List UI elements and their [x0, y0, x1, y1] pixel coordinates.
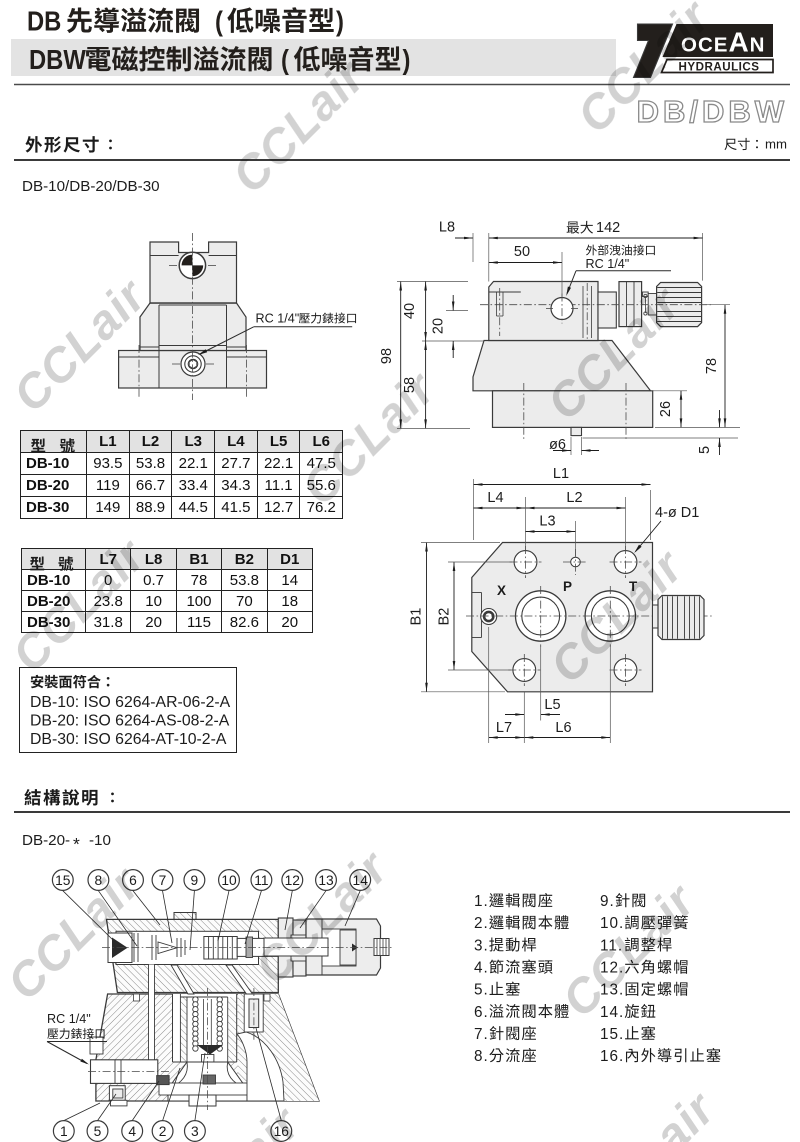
- svg-text:98: 98: [379, 348, 395, 364]
- svg-text:HYDRAULICS: HYDRAULICS: [678, 60, 759, 73]
- svg-text:4: 4: [128, 1124, 136, 1139]
- svg-text:mm: mm: [765, 137, 787, 152]
- svg-text:L3: L3: [539, 514, 555, 530]
- svg-text:*: *: [73, 834, 80, 854]
- svg-text:10: 10: [221, 873, 237, 888]
- svg-text:CCLair: CCLair: [158, 1097, 312, 1142]
- svg-text:3: 3: [191, 1124, 199, 1139]
- svg-text:L5: L5: [544, 697, 560, 713]
- svg-text:1: 1: [60, 1124, 68, 1139]
- svg-text:L1: L1: [553, 466, 569, 482]
- svg-text:2.: 2.: [474, 915, 489, 932]
- svg-text:CCLair: CCLair: [553, 874, 707, 1028]
- svg-text:): ): [403, 43, 411, 75]
- svg-text:15.: 15.: [600, 1026, 624, 1043]
- svg-text:CCLair: CCLair: [4, 269, 158, 423]
- svg-text:RC 1/4": RC 1/4": [256, 312, 300, 326]
- svg-text:DB-20: ISO 6264-AS-08-2-A: DB-20: ISO 6264-AS-08-2-A: [30, 713, 230, 730]
- svg-text:5: 5: [94, 1124, 102, 1139]
- svg-text:9.: 9.: [600, 893, 615, 910]
- svg-text:-10: -10: [89, 832, 111, 849]
- svg-text:L2: L2: [566, 490, 582, 506]
- svg-text:40: 40: [402, 303, 418, 319]
- svg-text:DB: DB: [27, 5, 61, 37]
- svg-text:26: 26: [658, 401, 674, 417]
- svg-text:B1: B1: [409, 608, 425, 626]
- svg-text:CCLair: CCLair: [223, 50, 377, 204]
- svg-text:RC 1/4": RC 1/4": [47, 1012, 91, 1026]
- svg-text:L6: L6: [555, 720, 571, 736]
- svg-text:4.: 4.: [474, 960, 489, 977]
- svg-text:7.: 7.: [474, 1026, 489, 1043]
- svg-text:DB-10/DB-20/DB-30: DB-10/DB-20/DB-30: [22, 178, 160, 195]
- svg-text:5: 5: [697, 446, 713, 454]
- svg-text:DB-10: ISO 6264-AR-06-2-A: DB-10: ISO 6264-AR-06-2-A: [30, 694, 231, 711]
- svg-text:3.: 3.: [474, 937, 489, 954]
- svg-text:P: P: [563, 579, 572, 594]
- svg-text:L8: L8: [439, 220, 455, 236]
- svg-text:DB/DBW: DB/DBW: [637, 94, 788, 129]
- svg-text:7: 7: [159, 873, 167, 888]
- svg-text:78: 78: [704, 358, 720, 374]
- svg-text:): ): [336, 5, 344, 37]
- svg-text:12: 12: [285, 873, 300, 888]
- svg-text:9: 9: [191, 873, 199, 888]
- svg-text:(: (: [281, 43, 289, 75]
- svg-text:(: (: [215, 5, 223, 37]
- svg-text:DB-30: ISO 6264-AT-10-2-A: DB-30: ISO 6264-AT-10-2-A: [30, 731, 227, 748]
- svg-text:DB-20-: DB-20-: [22, 832, 70, 849]
- svg-text:RC 1/4": RC 1/4": [586, 257, 630, 271]
- svg-text:CCLair: CCLair: [573, 1082, 727, 1142]
- svg-text:1.: 1.: [474, 893, 489, 910]
- svg-text:2: 2: [159, 1124, 167, 1139]
- svg-text:11: 11: [254, 873, 268, 888]
- svg-text:B2: B2: [437, 608, 453, 626]
- svg-text:16.: 16.: [600, 1048, 624, 1065]
- svg-text:142: 142: [596, 220, 620, 236]
- svg-text:5.: 5.: [474, 982, 489, 999]
- svg-text:15: 15: [55, 873, 71, 888]
- svg-text:CCLair: CCLair: [3, 529, 157, 683]
- svg-text:DBW: DBW: [29, 43, 86, 75]
- svg-text:CCLair: CCLair: [293, 362, 447, 516]
- svg-text:50: 50: [514, 244, 530, 260]
- svg-text:8.: 8.: [474, 1048, 489, 1065]
- svg-text:L4: L4: [487, 490, 503, 506]
- svg-text:20: 20: [431, 318, 447, 334]
- svg-text:L7: L7: [496, 720, 512, 736]
- svg-text:6.: 6.: [474, 1004, 489, 1021]
- svg-text:X: X: [497, 583, 506, 598]
- svg-text:4-ø D1: 4-ø D1: [655, 505, 699, 521]
